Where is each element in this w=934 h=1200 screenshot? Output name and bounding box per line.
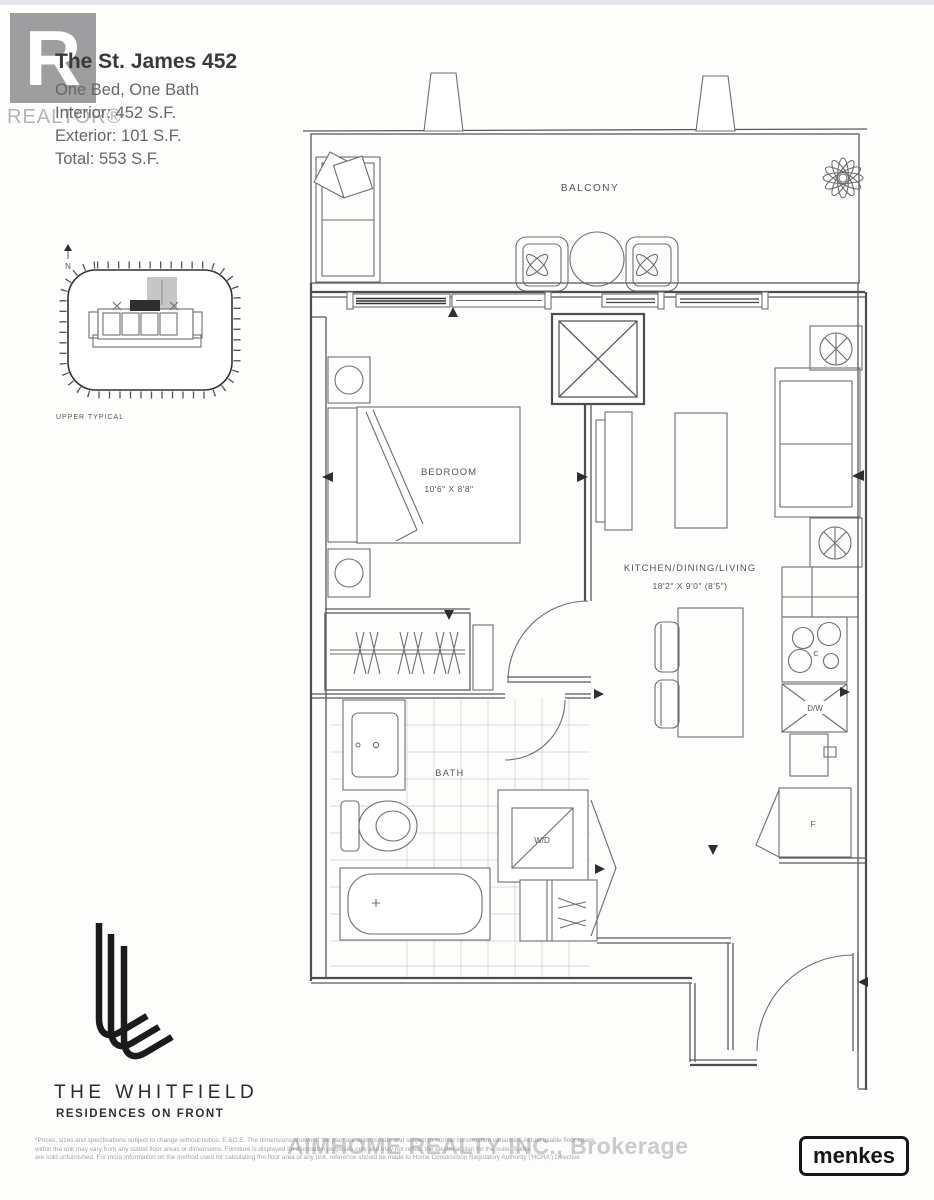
cooktop-label: C (813, 649, 819, 658)
window (676, 294, 763, 307)
linen-shelves (520, 880, 597, 941)
toilet (341, 801, 417, 851)
window (602, 294, 659, 307)
kitchen-dims: 18'2" X 9'0" (8'5") (653, 581, 728, 591)
dishwasher-label: D/W (807, 704, 823, 713)
menkes-logo: menkes (799, 1136, 909, 1176)
key-plan-caption: UPPER TYPICAL (56, 414, 124, 421)
dishwasher: D/W (782, 684, 847, 732)
counter (782, 567, 858, 617)
sink-icon (810, 326, 862, 370)
nightstand (328, 357, 370, 403)
balcony: BALCONY (303, 73, 867, 291)
key-plan: N UPPER TYPICAL (56, 244, 237, 421)
bedroom-closet (325, 609, 470, 690)
column (424, 73, 463, 131)
coffee-table (675, 413, 727, 528)
window (452, 294, 546, 307)
bedroom-door-swing (508, 601, 588, 681)
north-label: N (65, 262, 71, 271)
sofa (775, 368, 860, 517)
bedroom-label: BEDROOM (421, 467, 477, 478)
bathroom: W/D BATH (340, 700, 616, 941)
hangers-icon (398, 632, 424, 674)
window (352, 294, 450, 307)
washer-dryer: W/D (498, 790, 588, 882)
washer-dryer-label: W/D (534, 836, 550, 845)
tv-console (596, 412, 632, 530)
bedroom-dims: 10'6" X 8'8" (424, 484, 473, 494)
entry-door (757, 953, 858, 1051)
floor-plan-drawing: N UPPER TYPICAL (0, 0, 934, 1200)
brokerage-watermark: AIMHOME REALTY INC., Brokerage (287, 1133, 688, 1160)
balcony-label: BALCONY (561, 183, 619, 194)
fridge-label: F (811, 820, 816, 829)
hangers-icon (434, 632, 460, 674)
sink-icon (810, 518, 862, 567)
shaft (552, 314, 644, 404)
bedroom-furniture: BEDROOM 10'6" X 8'8" (328, 357, 520, 597)
building-name: THE WHITFIELD (54, 1082, 258, 1104)
fridge: F (756, 788, 851, 857)
bath-label: BATH (435, 768, 464, 778)
whitfield-logo-icon (99, 923, 172, 1056)
balcony-table (570, 232, 624, 286)
oven (790, 734, 836, 776)
vanity-sink (343, 700, 405, 790)
building-tagline: RESIDENCES ON FRONT (56, 1108, 224, 1120)
bath-door-swing (505, 700, 565, 760)
kitchen-label: KITCHEN/DINING/LIVING (624, 563, 756, 574)
dining-table-chairs (655, 608, 743, 737)
nightstand (328, 549, 370, 597)
bathtub (340, 868, 490, 940)
balcony-lounge-chair (314, 152, 380, 282)
column (696, 76, 735, 131)
floorplan-sheet: R REALTOR® The St. James 452 One Bed, On… (0, 0, 934, 1200)
cooktop: C (782, 617, 847, 682)
hangers-icon (354, 632, 380, 674)
plant-icon (823, 158, 863, 198)
